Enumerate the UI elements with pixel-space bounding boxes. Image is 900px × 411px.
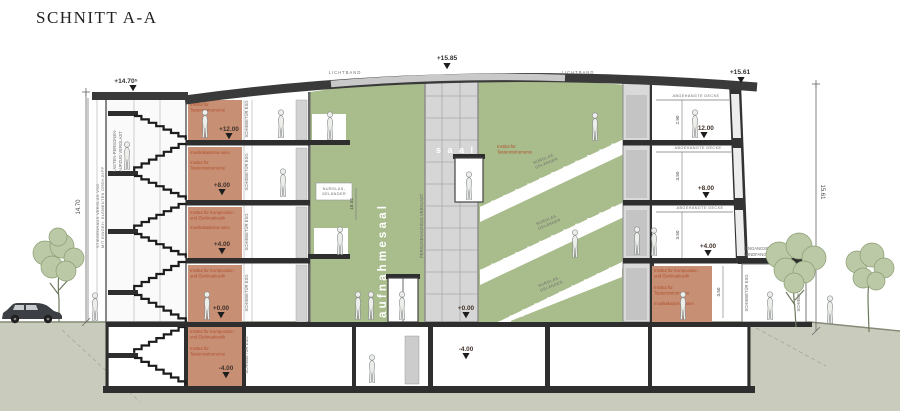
elevation-l0-center: +0.00 bbox=[458, 305, 475, 312]
room-label: Institut für bbox=[190, 160, 209, 165]
gallery-niche bbox=[314, 228, 348, 255]
ceiling-label: ABGEHÄNGTE DECKE bbox=[673, 94, 720, 98]
elevator-cabin bbox=[626, 268, 647, 320]
room-label: und Elektroakustik bbox=[190, 274, 226, 279]
room-label: musikakademie wien bbox=[654, 301, 694, 306]
gallery-slab bbox=[308, 140, 350, 145]
room-height-dim: 2.90 bbox=[675, 115, 680, 124]
hall-west-glass-wall bbox=[308, 92, 311, 322]
skylight-label-left: LICHTBAND bbox=[329, 70, 362, 75]
sliding-door-label: SCHIEBETÜR ESG bbox=[244, 337, 249, 374]
basement-room-label: und Elektroakustik bbox=[190, 335, 226, 340]
elevation-l1-left: +4.00 bbox=[214, 241, 231, 248]
tree-foliage bbox=[49, 228, 67, 246]
freight-elevator-label-line1: LASTEN-PERSONEN- bbox=[112, 129, 117, 172]
right-tree-2 bbox=[846, 243, 894, 332]
car-hub bbox=[14, 318, 17, 321]
room-label: musikakademie wien bbox=[190, 150, 230, 155]
hall-height-dim: 15.44 bbox=[349, 198, 354, 210]
elevator-cabin bbox=[626, 150, 647, 198]
section-canvas: Institut für Komposition und Elektroakus… bbox=[0, 0, 900, 411]
stair-landing bbox=[108, 290, 138, 295]
basement-room-label: Institut für bbox=[190, 346, 209, 351]
sliding-door-label: SCHIEBETÜR ESG bbox=[244, 214, 249, 251]
right-total-dim: 15.61 bbox=[819, 184, 825, 200]
elevation-roof-right: +15.61 bbox=[730, 69, 751, 76]
room-label: Tasteninstrumente bbox=[190, 166, 226, 171]
room-label: musikakademie wien bbox=[190, 225, 230, 230]
basement-floor-slab bbox=[103, 386, 755, 393]
skylight-label-right: LICHTBAND bbox=[562, 70, 595, 75]
right-zone: ABGEHÄNGTE DECKE ABGEHÄNGTE DECKE ABGEHÄ… bbox=[623, 82, 812, 327]
sliding-door-label: SCHIEBETÜR ESG bbox=[244, 275, 249, 312]
person-figure bbox=[827, 296, 832, 324]
drawing-title: SCHNITT A-A bbox=[36, 8, 158, 28]
elevation-roof-center: +15.85 bbox=[437, 55, 458, 62]
duct bbox=[296, 265, 307, 322]
stair-landing bbox=[108, 111, 138, 116]
room-label: Institut für Komposition bbox=[654, 268, 698, 273]
glass-railing-label: GELÄNDER bbox=[322, 192, 346, 196]
basement-room-label: Institut für Komposition bbox=[190, 329, 234, 334]
car bbox=[2, 303, 62, 323]
floor-slab-l2 bbox=[186, 200, 310, 206]
gallery-slab bbox=[308, 254, 350, 259]
ground-floor-slab bbox=[106, 322, 752, 327]
person-figure bbox=[92, 293, 97, 321]
sliding-door-label: SCHIEBETÜR ESG bbox=[744, 275, 749, 312]
room-label: Institut für Komposition bbox=[190, 268, 234, 273]
left-total-dim: 14.70 bbox=[76, 199, 82, 215]
section-drawing-page: SCHNITT A-A Inst bbox=[0, 0, 900, 411]
floor-slab bbox=[623, 140, 743, 146]
room-height-dim: 3.50 bbox=[716, 287, 721, 296]
tree-trunk bbox=[868, 282, 869, 332]
freight-elevator-label: LASTEN-PERSONEN- AUFZUG VERGLAST bbox=[112, 129, 123, 172]
person-figure bbox=[278, 110, 283, 138]
stairwell-glazing-label-line2: MIT EINGEH. ELEMENTEN DREH-KIPP bbox=[101, 166, 105, 248]
room-height-dim: 3.50 bbox=[675, 171, 680, 180]
tree-foliage bbox=[56, 261, 76, 281]
ceiling-label: ABGEHÄNGTE DECKE bbox=[675, 146, 722, 150]
basement-door bbox=[405, 336, 419, 384]
elevation-l2-right: +8.00 bbox=[698, 185, 715, 192]
freight-elevator-label-line2: AUFZUG VERGLAST bbox=[118, 131, 123, 172]
floor-slab bbox=[623, 258, 747, 264]
basement-wall bbox=[545, 327, 550, 386]
basement-room-label: Tasteninstrumente bbox=[190, 352, 226, 357]
room-height-dim: 3.50 bbox=[675, 230, 680, 239]
duct bbox=[296, 207, 307, 258]
basement: Institut für Komposition und Elektroakus… bbox=[103, 324, 755, 393]
stair-landing bbox=[108, 229, 138, 234]
elevation-l1-right: +4.00 bbox=[700, 243, 717, 250]
elevation-b1-center: -4.00 bbox=[459, 346, 474, 353]
stair-landing bbox=[108, 353, 138, 358]
ceiling-label: ABGEHÄNGTE DECKE bbox=[677, 206, 724, 210]
elevation-tower-roof: +14.70⁵ bbox=[114, 78, 137, 85]
sliding-door-label: SCHIEBETÜR ESG bbox=[244, 101, 249, 138]
elevation-l0-left: +0.00 bbox=[213, 305, 230, 312]
floor-slab-l3 bbox=[186, 140, 310, 146]
floor-slab bbox=[623, 200, 745, 206]
person-figure bbox=[280, 169, 285, 197]
tower-roof bbox=[92, 92, 188, 100]
duct bbox=[296, 100, 307, 140]
saal-caption: s a a l bbox=[436, 145, 475, 155]
room-label: und Elektroakustik bbox=[190, 216, 226, 221]
saal-institute-line1: Institut für bbox=[497, 144, 516, 149]
basement-wall bbox=[184, 327, 188, 386]
tree-foliage bbox=[867, 272, 885, 290]
room-label: und Elektroakustik bbox=[654, 274, 690, 279]
hall-name-vertical: aufnahmesaal bbox=[377, 203, 389, 318]
glass-railing-label: NURGLAS- bbox=[323, 187, 346, 191]
basement-wall bbox=[648, 327, 652, 386]
tree-foliage bbox=[784, 273, 804, 293]
stairwell-glazing-label-line1: STIEGENHAUS VERGLAS VSG bbox=[96, 184, 100, 248]
saal-institute-line2: Tasteninstrumente bbox=[497, 150, 533, 155]
duct bbox=[296, 148, 307, 200]
room-label: Institut für Komposition bbox=[190, 210, 234, 215]
passenger-elevator-label: PERSONENAUFZUG VERGLAST bbox=[419, 193, 424, 258]
elevation-l2-left: +8.00 bbox=[214, 182, 231, 189]
elevation-l3-left: +12.00 bbox=[219, 126, 239, 133]
elevation-arrow bbox=[443, 63, 450, 69]
floor-slab-l1 bbox=[186, 258, 310, 264]
basement-wall bbox=[352, 327, 356, 386]
elevator-cabin bbox=[626, 95, 647, 138]
sliding-door-label: SCHIEBETÜR ESG bbox=[244, 154, 249, 191]
room-label: Institut für bbox=[654, 285, 673, 290]
basement-wall bbox=[428, 327, 433, 386]
car-window bbox=[26, 305, 38, 310]
elevation-arrow bbox=[129, 85, 136, 91]
car-hub bbox=[47, 318, 50, 321]
elevation-b1-left: -4.00 bbox=[219, 365, 234, 372]
